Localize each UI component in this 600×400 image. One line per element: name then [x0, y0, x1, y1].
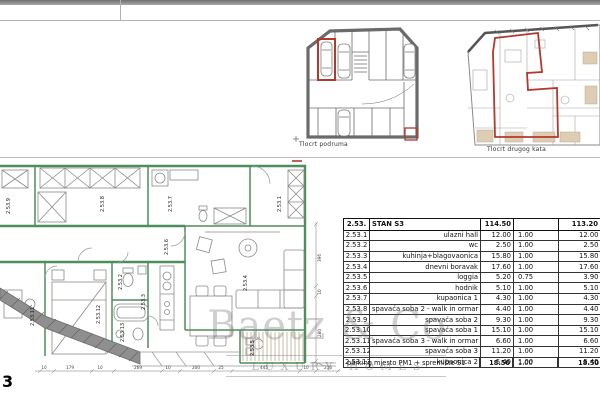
cell-area: 5.10	[481, 283, 514, 294]
dim-label: 10	[41, 365, 47, 370]
cell-coef: 1.00	[514, 241, 559, 252]
cell-area: 15.10	[481, 325, 514, 336]
cell-code: 2.53.1	[344, 230, 370, 241]
cell-code: 2.53.6	[344, 283, 370, 294]
cell-area: 5.20	[481, 272, 514, 283]
room-label: 2.53.12	[96, 305, 102, 324]
parking-area: 18.50	[480, 357, 513, 368]
table-row: 2.53.5loggia5.200.753.90	[344, 272, 600, 283]
cell-name: loggia	[370, 272, 481, 283]
cell-net: 2.50	[559, 241, 600, 252]
cell-code: 2.53.4	[344, 262, 370, 273]
second-floor-plan	[465, 20, 600, 150]
table-row: 2.53.8spavaća soba 2 - walk in ormar4.40…	[344, 304, 600, 315]
cell-name: spavaća soba 2	[370, 315, 481, 326]
cell-code: 2.53.3	[344, 251, 370, 262]
room-label: 2.53.5	[250, 340, 256, 356]
cell-code: 2.53.9	[344, 315, 370, 326]
garage-walls	[293, 29, 417, 142]
cell-coef: 1.00	[514, 347, 559, 358]
room-label: 2.53.4	[243, 275, 249, 291]
dim-label: 179	[66, 365, 74, 370]
table-row: 2.53.9spavaća soba 29.301.009.30	[344, 315, 600, 326]
cell-name: spavaća soba 2 - walk in ormar	[370, 304, 481, 315]
room-label: 2.53.9	[6, 198, 12, 214]
parking-row: parking mjesto PM1 + spremište S1 18.50 …	[343, 357, 600, 368]
cell-coef: 1.00	[514, 251, 559, 262]
parking-net: 18.50	[558, 357, 600, 368]
cell-code: 2.53.	[344, 219, 370, 231]
room-label: 2.53.3	[141, 294, 147, 310]
cell-coef: 1.00	[514, 262, 559, 273]
cell-name: STAN S3	[370, 219, 481, 231]
table-row: 2.53.11spavaća soba 3 - walk in ormar6.6…	[344, 336, 600, 347]
cell-area: 12.00	[481, 230, 514, 241]
room-label: 2.53.13	[120, 323, 126, 342]
cell-name: spavaća soba 3	[370, 347, 481, 358]
room-labels: 2.53.9 2.53.8 2.53.7 2.53.1 2.53.6 2.53.…	[6, 196, 283, 356]
table-row: 2.53.6hodnik5.101.005.10	[344, 283, 600, 294]
drawing-sheet: Tlocrt podruma Tlocrt drugog kata	[0, 0, 600, 400]
cell-coef: 1.00	[514, 325, 559, 336]
cell-code: 2.53.2	[344, 241, 370, 252]
cell-net: 3.90	[559, 272, 600, 283]
main-floor-plan: 2.53.9 2.53.8 2.53.7 2.53.1 2.53.6 2.53.…	[0, 158, 345, 400]
cell-net: 113.20	[559, 219, 600, 231]
floor-outline	[468, 25, 600, 145]
cell-name: spavaća soba 3 - walk in ormar	[370, 336, 481, 347]
cell-net: 17.60	[559, 262, 600, 273]
dim-label: 445	[260, 365, 268, 370]
cell-coef: 1.00	[514, 230, 559, 241]
cell-coef: 1.00	[514, 283, 559, 294]
room-label: 2.53.1	[277, 196, 283, 212]
cell-name: dnevni boravak	[370, 262, 481, 273]
dim-label: 269	[134, 365, 142, 370]
cell-name: kuhinja+blagovaonica	[370, 251, 481, 262]
room-label: 2.53.7	[168, 196, 174, 212]
cell-code: 2.53.10	[344, 325, 370, 336]
cell-code: 2.53.7	[344, 294, 370, 305]
table-row: 2.53.10spavaća soba 115.101.0015.10	[344, 325, 600, 336]
cell-area: 17.60	[481, 262, 514, 273]
cell-name: ulazni hall	[370, 230, 481, 241]
table-row: 2.53.4dnevni boravak17.601.0017.60	[344, 262, 600, 273]
dim-label: 200	[192, 365, 200, 370]
dim-label: 280	[317, 329, 322, 337]
cell-area: 4.30	[481, 294, 514, 305]
cell-net: 5.10	[559, 283, 600, 294]
cell-net: 4.40	[559, 304, 600, 315]
table-row: 2.53.3kuhinja+blagovaonica15.801.0015.80	[344, 251, 600, 262]
parking-coef: 1.00	[513, 357, 558, 368]
cell-area: 15.80	[481, 251, 514, 262]
cell-name: spavaća soba 1	[370, 325, 481, 336]
dim-label: 10	[97, 365, 103, 370]
room-label: 2.53.8	[100, 196, 106, 212]
cell-net: 6.60	[559, 336, 600, 347]
cell-name: wc	[370, 241, 481, 252]
cell-area: 9.30	[481, 315, 514, 326]
cell-net: 12.00	[559, 230, 600, 241]
cell-area: 2.50	[481, 241, 514, 252]
parking-name: parking mjesto PM1 + spremište S1	[343, 357, 480, 368]
cell-coef	[514, 219, 559, 231]
sheet-frame-divider	[120, 0, 121, 20]
cell-coef: 1.00	[514, 294, 559, 305]
table-row: 2.53.1ulazni hall12.001.0012.00	[344, 230, 600, 241]
cell-area: 6.60	[481, 336, 514, 347]
cell-net: 9.30	[559, 315, 600, 326]
area-table: 2.53. STAN S3 114.50 113.20 2.53.1ulazni…	[343, 218, 600, 368]
cell-net: 15.80	[559, 251, 600, 262]
cell-net: 4.30	[559, 294, 600, 305]
cell-coef: 0.75	[514, 272, 559, 283]
room-label: 2.53.11	[30, 307, 36, 326]
page-number: 3	[2, 372, 13, 391]
cell-area: 11.20	[481, 347, 514, 358]
cell-coef: 1.00	[514, 315, 559, 326]
cell-code: 2.53.5	[344, 272, 370, 283]
table-row: 2.53.12spavaća soba 311.201.0011.20	[344, 347, 600, 358]
cell-area: 4.40	[481, 304, 514, 315]
dim-label: 10	[317, 289, 322, 295]
table-row: 2.53.7kupaonica 14.301.004.30	[344, 294, 600, 305]
basement-plan	[292, 22, 448, 144]
cell-coef: 1.00	[514, 304, 559, 315]
cell-area: 114.50	[481, 219, 514, 231]
dim-label: 216	[324, 365, 332, 370]
sheet-top-band	[0, 0, 600, 5]
cell-code: 2.53.12	[344, 347, 370, 358]
table-row: 2.53.2wc2.501.002.50	[344, 241, 600, 252]
cell-coef: 1.00	[514, 336, 559, 347]
dim-label: 25	[218, 365, 224, 370]
cell-net: 15.10	[559, 325, 600, 336]
second-floor-plan-caption: Tlocrt drugog kata	[487, 146, 546, 153]
basement-plan-caption: Tlocrt podruma	[299, 141, 348, 148]
apartment-s3-outline	[493, 33, 558, 137]
dim-label: 10	[303, 365, 309, 370]
dim-label: 10	[165, 365, 171, 370]
table-header-row: 2.53. STAN S3 114.50 113.20	[344, 219, 600, 231]
cell-name: kupaonica 1	[370, 294, 481, 305]
dim-label: 396	[317, 254, 322, 262]
cell-code: 2.53.11	[344, 336, 370, 347]
dimension-line-right: 396 10 280	[314, 222, 322, 365]
room-label: 2.53.6	[164, 239, 170, 255]
cell-code: 2.53.8	[344, 304, 370, 315]
cell-net: 11.20	[559, 347, 600, 358]
room-label: 2.53.2	[118, 274, 124, 290]
cell-name: hodnik	[370, 283, 481, 294]
